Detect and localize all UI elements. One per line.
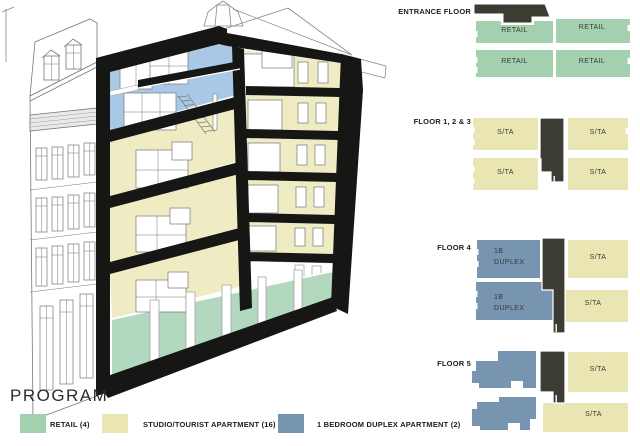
room-label-studio: S/TA xyxy=(568,129,628,136)
room-label-studio: S/TA xyxy=(568,254,628,261)
room-label-retail: RETAIL xyxy=(556,58,628,65)
legend-label-retail: RETAIL (4) xyxy=(50,420,90,429)
room-label-retail: RETAIL xyxy=(556,24,628,31)
room-label-studio: S/TA xyxy=(473,169,538,176)
legend-label-studio: STUDIO/TOURIST APARTMENT (16) xyxy=(143,420,276,429)
room-label-studio: S/TA xyxy=(560,411,627,418)
floor-plan-label-123: FLOOR 1, 2 & 3 xyxy=(391,117,471,126)
plan-floor-5 xyxy=(472,351,628,432)
room-label-studio: S/TA xyxy=(473,129,538,136)
plan-entrance-core xyxy=(474,4,550,23)
program-title: PROGRAM xyxy=(10,386,108,406)
street-facade xyxy=(30,19,97,420)
legend-label-duplex: 1 BEDROOM DUPLEX APARTMENT (2) xyxy=(317,420,461,429)
room-label-retail: RETAIL xyxy=(478,27,551,34)
room-label-studio: S/TA xyxy=(558,300,628,307)
room-label-duplex: 1B DUPLEX xyxy=(494,246,542,268)
architectural-program-diagram: ENTRANCE FLOOR FLOOR 1, 2 & 3 FLOOR 4 FL… xyxy=(0,0,640,446)
legend-swatch-duplex xyxy=(278,414,304,433)
room-label-studio: S/TA xyxy=(568,366,628,373)
plan-stair-core xyxy=(540,351,565,403)
room-label-duplex: 1B DUPLEX xyxy=(494,292,542,314)
legend-swatch-retail xyxy=(20,414,46,433)
building-section-and-plans-illustration xyxy=(0,0,640,446)
plan-room-duplex-upper xyxy=(472,351,536,388)
floor-plan-label-4: FLOOR 4 xyxy=(391,243,471,252)
plan-room-duplex-upper xyxy=(472,397,536,430)
plan-room-retail xyxy=(556,19,630,43)
room-label-retail: RETAIL xyxy=(478,58,551,65)
plan-entrance-floor xyxy=(474,4,631,77)
floor-plan-label-5: FLOOR 5 xyxy=(391,359,471,368)
room-label-studio: S/TA xyxy=(568,169,628,176)
plan-stair-core xyxy=(540,118,564,182)
floor-plan-label-entrance: ENTRANCE FLOOR xyxy=(391,7,471,16)
legend-swatch-studio xyxy=(102,414,128,433)
